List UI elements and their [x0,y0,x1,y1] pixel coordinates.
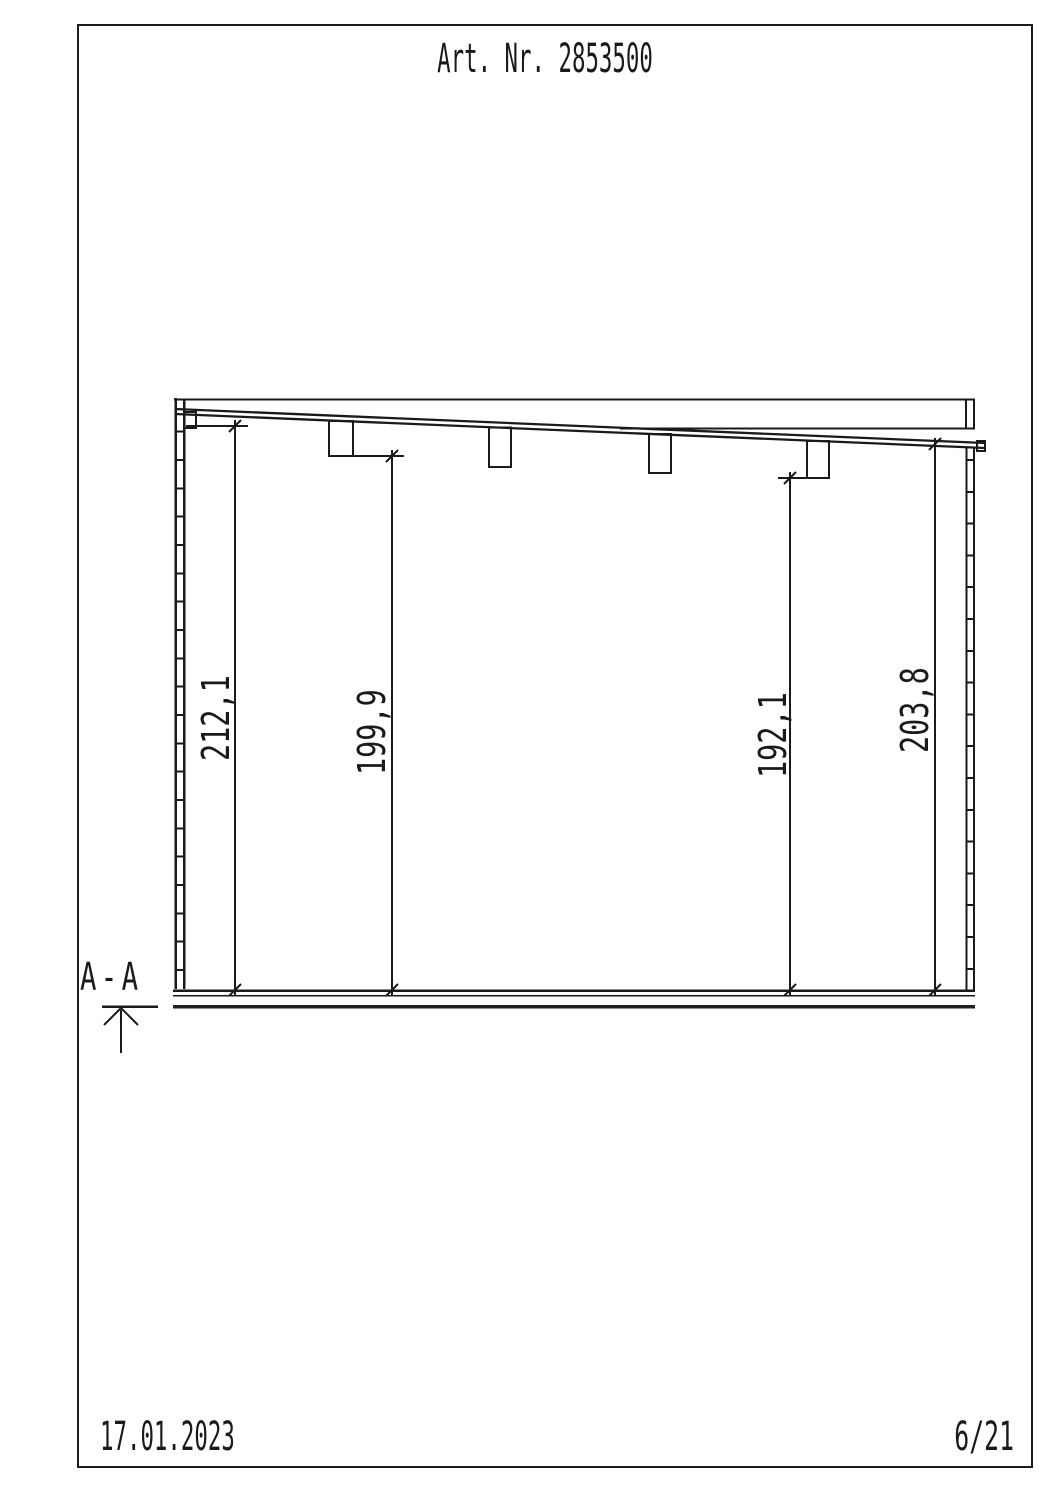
drawing-page: Art. Nr. 2853500 [0,0,1058,1497]
dimension-label-4: 203,8 [893,667,937,753]
section-label: A-A [80,954,142,999]
purlin-block-4 [807,441,829,478]
dimension-label-2: 199,9 [350,689,394,775]
purlin-block-1 [329,421,353,456]
purlin-block-2 [489,428,511,468]
drawing-title: Art. Nr. 2853500 [437,35,653,82]
roof-slope [175,409,985,451]
floor-slab [173,991,975,1007]
purlin-block-3 [649,434,671,473]
dimension-label-1: 212,1 [194,675,238,761]
right-wall [967,448,975,991]
section-view [173,398,985,1007]
section-arrow-icon [102,1007,158,1054]
dimension-lines [186,420,941,996]
section-marker: A-A [80,954,158,1053]
dimension-label-3: 192,1 [751,692,795,778]
date-label: 17.01.2023 [100,1413,235,1460]
left-wall [176,398,185,989]
page-number: 6/21 [954,1413,1014,1460]
